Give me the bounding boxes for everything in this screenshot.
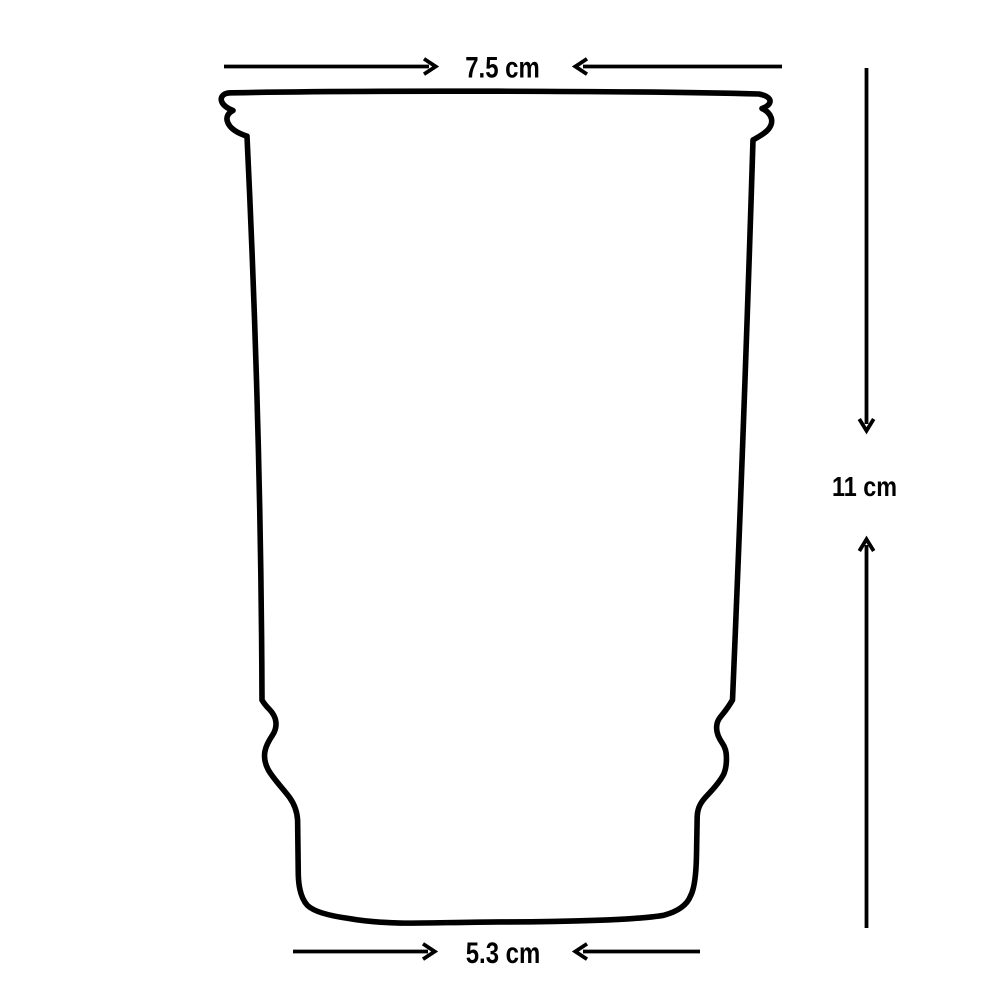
svg-text:11 cm: 11 cm <box>832 471 897 502</box>
svg-text:5.3 cm: 5.3 cm <box>466 937 541 970</box>
svg-text:7.5 cm: 7.5 cm <box>465 51 540 84</box>
